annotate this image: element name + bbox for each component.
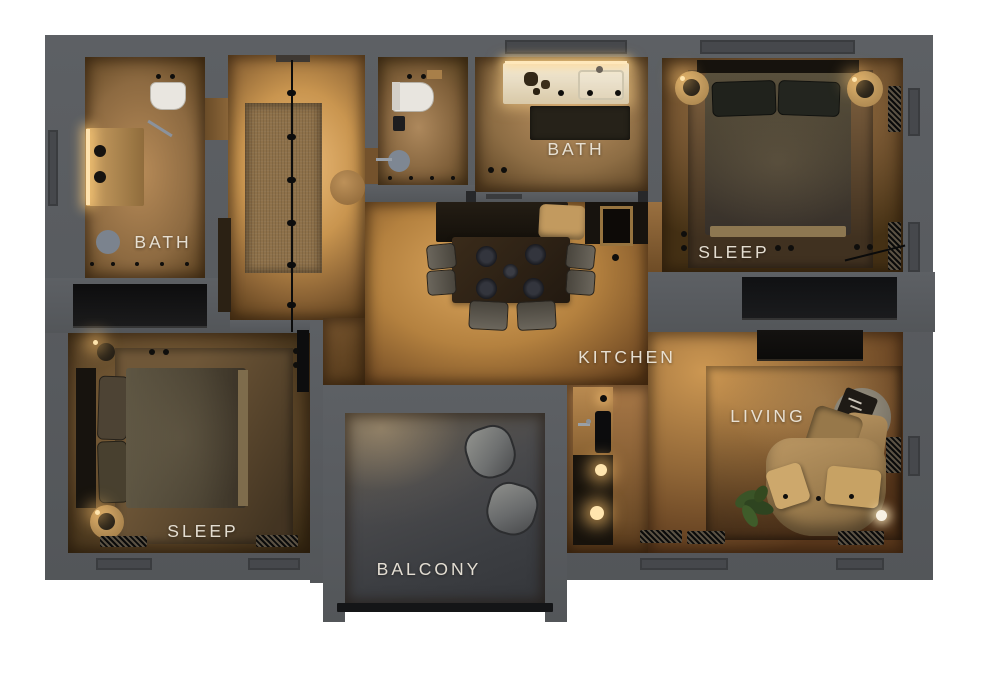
lamp-glow [95,510,100,515]
tv-panel [297,330,309,392]
spotlight-dot [409,176,413,180]
room-label-sleep-right: SLEEP [689,242,779,263]
radiator [100,536,147,547]
balcony-wall-left [323,385,345,622]
faucet [596,66,603,73]
track-light-fixture [287,177,296,183]
track-light-fixture [287,220,296,226]
spotlight-dot [430,176,434,180]
wardrobe-right [742,277,897,320]
bed-headboard [76,368,96,508]
bed [126,368,246,508]
shower-mat [530,106,630,140]
plate [525,244,546,265]
toilet [150,82,186,110]
right-bedroom-doorway [648,202,662,272]
pillow [777,80,840,117]
room-label-kitchen: KITCHEN [557,347,697,368]
sofa-button [783,494,788,499]
wall-button [421,74,426,79]
round-basin [388,150,410,172]
counter-spot [600,395,607,402]
track-light [291,60,293,332]
spotlight-dot [488,167,494,173]
bed-foot-strip [238,370,248,506]
hall-rug [245,103,322,273]
pillow [97,440,129,503]
spotlight-dot [558,90,564,96]
shelf [427,70,442,79]
window [48,130,58,206]
spotlight-dot [135,262,139,266]
window [908,436,920,476]
spotlight-dot [587,90,593,96]
waste-bin [393,116,405,131]
window [640,558,728,570]
lamp-glow [93,340,98,345]
stove-light [590,506,604,520]
wall-left-bedroom-right [310,320,323,583]
spotlight-dot [163,349,169,355]
spotlight-dot [615,90,621,96]
spotlight-dot [501,167,507,173]
pouf [330,170,365,205]
vanity-decor [524,72,538,86]
vanity-decor [533,88,540,95]
floor-lamp-ball [876,510,887,521]
spotlight-dot [160,262,164,266]
wall-button [170,74,175,79]
dining-chair [426,269,457,296]
window [96,558,152,570]
vanity-led-strip [86,129,90,205]
dining-chair [565,243,596,271]
dining-chair [426,243,457,271]
radiator [640,530,682,543]
stove-light [595,464,607,476]
wardrobe-left [73,284,207,328]
room-label-sleep-left: SLEEP [158,521,248,542]
window [505,40,627,54]
window [908,222,920,272]
plate [476,278,497,299]
pillow [711,80,776,117]
bed-foot-bench [710,226,846,237]
wall-button [156,74,161,79]
spotlight-dot [681,245,687,251]
serving-bowl [503,264,518,279]
kitchen-counter-dark [573,455,613,545]
spotlight-dot [788,245,794,251]
dining-chair [516,300,556,331]
wall-wc-bottom [365,185,475,202]
wall-faucet [376,158,392,161]
spotlight-dot [185,262,189,266]
sink [94,145,106,157]
spotlight-dot [451,176,455,180]
spotlight-dot [681,231,687,237]
radiator [687,531,725,544]
balcony-wall-right [545,385,567,622]
bath-door-threshold [486,194,522,199]
nightstand-lamp [97,343,115,361]
pillow [97,375,129,440]
kitchen-floor-sw-patch [323,318,365,385]
spotlight-dot [149,349,155,355]
wall-button [407,74,412,79]
room-label-bath-main: BATH [531,139,621,160]
kitchen-sink [595,411,611,453]
bench-cushion [538,204,586,240]
room-label-living: LIVING [723,406,813,427]
entry-door [276,55,310,62]
track-light-fixture [287,134,296,140]
toilet-tank [392,82,400,110]
wc-doorway [365,148,378,184]
radiator [838,531,884,545]
left-bath-doorway [205,98,228,140]
tv-console [757,330,863,361]
floorplan-scene: BATH BATH SLEEP KITCHEN LIVING SLEEP BAL… [0,0,1000,684]
track-light-fixture [287,90,296,96]
radiator [888,86,901,132]
sink [94,171,106,183]
plate [523,278,544,299]
bath-vanity [86,128,144,206]
radiator [886,437,901,473]
spotlight-dot [854,244,860,250]
balcony-railing [337,603,553,612]
hall-console [218,218,231,312]
bed-headboard [697,60,859,73]
lamp-glow [852,77,857,82]
window [908,88,920,136]
sofa-pillow [824,465,882,508]
cabinet-frame [600,206,633,246]
room-label-bath-left: BATH [118,232,208,253]
vanity-led-strip [505,61,627,64]
sofa-button [849,494,854,499]
window [836,558,884,570]
bath-stool [96,230,120,254]
sofa-button [816,496,821,501]
track-light-fixture [287,302,296,308]
dining-chair [565,269,596,296]
nightstand-lamp [98,513,115,530]
window [248,558,300,570]
spotlight-dot [90,262,94,266]
window [700,40,855,54]
radiator [256,535,298,547]
plate [476,246,497,267]
nightstand-lamp [856,80,874,98]
spotlight-dot [293,362,299,368]
spotlight-dot [293,348,299,354]
dining-chair [468,300,508,331]
spotlight-dot [111,262,115,266]
spotlight-dot [612,254,619,261]
vanity-decor [541,80,550,89]
room-label-balcony: BALCONY [359,559,499,580]
spotlight-dot [867,244,873,250]
kitchen-faucet-base [586,419,591,424]
track-light-fixture [287,262,296,268]
nightstand-lamp [683,79,700,96]
spotlight-dot [388,176,392,180]
lamp-glow [680,76,685,81]
